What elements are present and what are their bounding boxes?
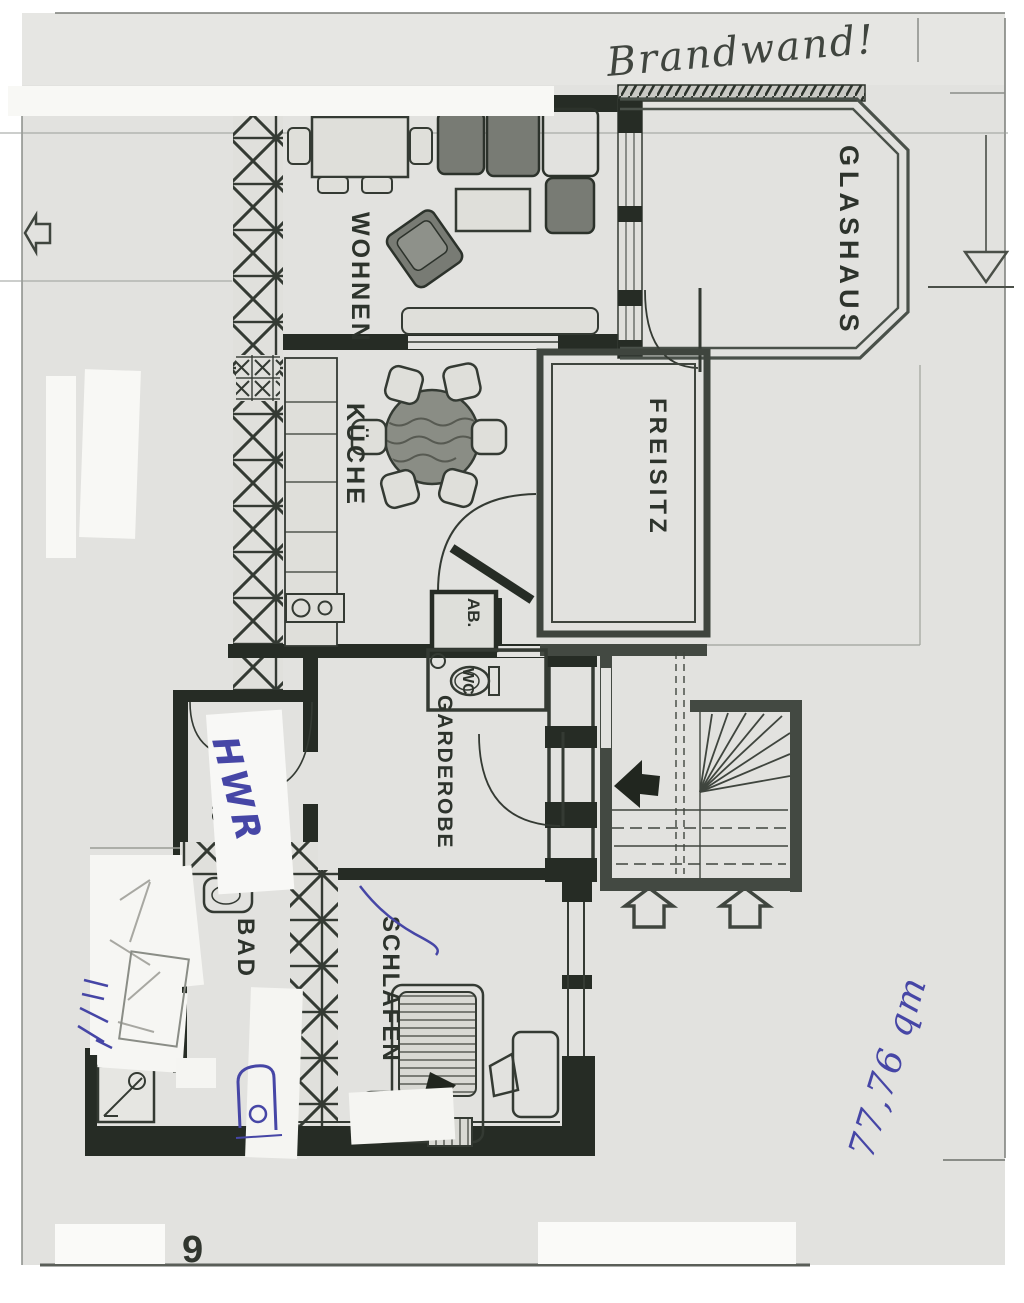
- kitchen-counter: [285, 358, 344, 646]
- label-garderobe: GARDEROBE: [433, 695, 456, 850]
- sideboard: [402, 308, 598, 334]
- label-wohnen: WOHNEN: [346, 212, 374, 344]
- scanned-floorplan-page: WOHNEN GLASHAUS KÜCHE FREISITZ AB. WC GA…: [0, 0, 1024, 1303]
- label-freisitz: FREISITZ: [644, 398, 671, 537]
- label-glashaus: GLASHAUS: [834, 145, 864, 337]
- floorplan-drawing: WOHNEN GLASHAUS KÜCHE FREISITZ AB. WC GA…: [0, 0, 1024, 1303]
- page-number: 9: [182, 1229, 203, 1271]
- label-schlafen: SCHLAFEN: [377, 916, 404, 1063]
- coffee-table: [456, 189, 530, 231]
- window-band: [618, 99, 642, 358]
- dining-table: [312, 117, 408, 177]
- label-wc: WC: [459, 668, 476, 695]
- label-ab: AB.: [464, 598, 483, 627]
- label-kueche: KÜCHE: [341, 403, 370, 507]
- washing-machine: [98, 1066, 154, 1122]
- ab-room: [432, 592, 496, 650]
- label-bad: BAD: [232, 918, 259, 979]
